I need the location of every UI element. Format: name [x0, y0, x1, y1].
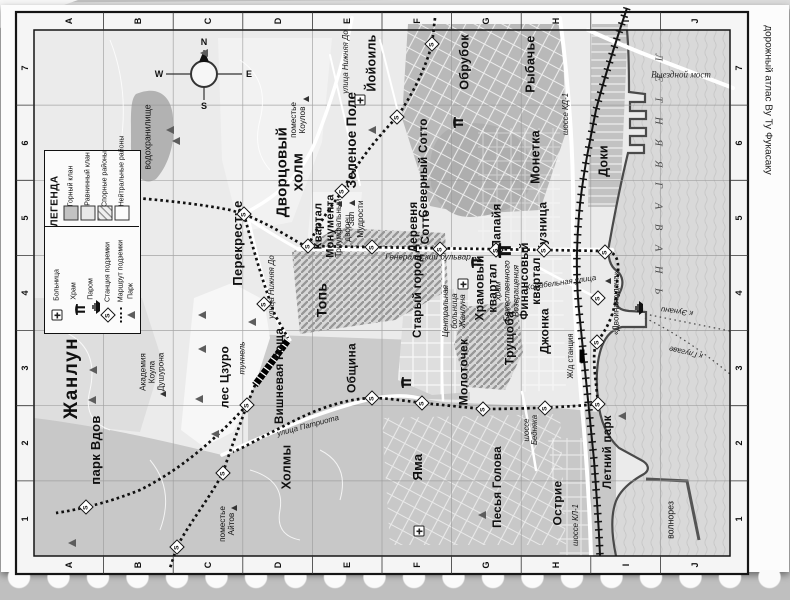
- district-old-town-label: Старый город: [412, 254, 424, 338]
- grid-row-4: 4: [20, 290, 30, 295]
- grid-col-B-bottom: B: [133, 562, 143, 569]
- legend-metro-route-icon: [120, 308, 122, 323]
- district-ostrie-label: Острие: [552, 480, 565, 525]
- district-pesya-golova-label: Песья Голова: [492, 446, 504, 528]
- park-icon: [248, 318, 256, 326]
- grid-col-J-bottom: J: [690, 562, 700, 567]
- poi-academy-label: Академия Коула Душурона: [140, 353, 167, 392]
- grid-row-2-right: 2: [734, 441, 744, 446]
- park-icon: [166, 126, 174, 134]
- grid-col-H-bottom: H: [551, 562, 561, 569]
- grid-col-C-bottom: C: [203, 562, 213, 569]
- grid-row-6-right: 6: [734, 140, 744, 145]
- park-icon: [89, 366, 97, 374]
- grid-col-F: F: [412, 18, 422, 24]
- grid-col-C: C: [203, 18, 213, 25]
- legend-hospital-icon: [52, 310, 63, 321]
- compass-w: W: [155, 69, 164, 79]
- street-kl-1-label: шоссе КЛ-1: [572, 504, 580, 546]
- grid-row-1-right: 1: [734, 516, 744, 521]
- grid-col-E: E: [342, 18, 352, 24]
- grid-col-B: B: [133, 18, 143, 25]
- legend-label-hospital: Больница: [54, 269, 61, 301]
- legend-swatch-mountain-clan: [64, 206, 79, 221]
- poi-marker-icon: [231, 505, 237, 511]
- district-papaya-label: Папайя: [491, 203, 504, 248]
- grid-col-I-bottom: I: [621, 564, 631, 567]
- legend-swatch-neutral-districts: [115, 206, 130, 221]
- legend-title: ЛЕГЕНДА: [50, 175, 61, 226]
- poi-ayts-estate-label: поместье Айтов: [219, 506, 237, 542]
- grid-row-6: 6: [20, 140, 30, 145]
- poi-marker-icon: [303, 96, 309, 102]
- legend-label-park: Парк: [128, 283, 135, 299]
- rail-station-icon: [580, 350, 585, 363]
- poi-rail-station-label: Ж/д станция: [567, 333, 575, 378]
- legend-swatch-disputed-districts: [98, 206, 113, 221]
- district-obrubok-label: Обрубок: [458, 34, 471, 90]
- atlas-caption: дорожный атлас Ву Ту Фукасаку: [763, 25, 774, 175]
- legend-label-temple: Храм: [71, 282, 78, 299]
- poi-central-hospital-label: Центральная больница Жанлуна: [442, 285, 468, 337]
- legend-park-icon: [127, 311, 135, 319]
- district-yoyoil-label: Йойоиль: [365, 34, 378, 91]
- legend-label-metro-route: Маршрут подземки: [118, 240, 125, 302]
- park-icon: [478, 511, 486, 519]
- grid-col-G: G: [481, 17, 491, 24]
- legend-label-metro-station: Станция подземки: [105, 242, 112, 302]
- district-doki-label: Доки: [597, 145, 610, 177]
- park-icon: [618, 412, 626, 420]
- poi-tunnel-label: туннель: [239, 342, 248, 375]
- legend-label-plain-clan: Равнинный клан: [85, 152, 92, 205]
- poi-marker-icon: [160, 391, 166, 397]
- park-icon: [198, 345, 206, 353]
- poi-marker-icon: [336, 201, 342, 207]
- park-icon: [172, 137, 180, 145]
- poi-wisdom-hall-label: Зал Мудрости: [348, 200, 366, 237]
- district-molotochek-label: Молоточек: [458, 339, 471, 406]
- district-palace-hill-label: Дворцовый холм: [274, 127, 306, 217]
- park-icon: [198, 311, 206, 319]
- poi-kouls-estate-label: поместье Коулов: [290, 102, 308, 138]
- park-icon: [68, 539, 76, 547]
- scanned-atlas-page: ЛЕГЕНДА N S W E Л Е Т Н Я Я Г А В А Н Ь …: [0, 0, 790, 600]
- poi-marker-icon: [605, 278, 611, 284]
- compass-n: N: [201, 37, 208, 47]
- grid-col-H: H: [551, 18, 561, 25]
- district-green-field-label: Зеленое Поле: [345, 92, 359, 189]
- park-icon: [195, 395, 203, 403]
- legend-label-mountain-clan: Горный клан: [68, 166, 75, 207]
- grid-row-7: 7: [20, 65, 30, 70]
- grid-col-F-bottom: F: [412, 562, 422, 568]
- hospital-icon: [458, 279, 469, 290]
- grid-row-5: 5: [20, 215, 30, 220]
- hospital-icon: [414, 526, 425, 537]
- sea-name-label: Л Е Т Н Я Я Г А В А Н Ь: [653, 54, 664, 301]
- legend-label-disputed-districts: Спорные районы: [102, 151, 109, 207]
- district-yama-label: Яма: [411, 454, 425, 481]
- grid-col-D-bottom: D: [273, 562, 283, 569]
- legend-label-ferry: Паром: [88, 278, 95, 300]
- district-monetka-label: Монетка: [529, 130, 542, 184]
- grid-col-I: I: [621, 20, 631, 23]
- district-kholmy-label: Холмы: [280, 445, 293, 490]
- legend-swatch-plain-clan: [81, 206, 96, 221]
- district-tszuro-forest-label: лес Цзуро: [219, 346, 232, 408]
- compass-e: E: [246, 69, 252, 79]
- hospital-icon: [355, 95, 366, 106]
- grid-row-5-right: 5: [734, 215, 744, 220]
- park-icon: [200, 49, 208, 57]
- grid-col-G-bottom: G: [481, 561, 491, 568]
- poi-divine-return-temple-label: храм Божественного Возвращения: [495, 260, 522, 321]
- district-rybachye-label: Рыбачье: [524, 35, 537, 92]
- grid-row-1: 1: [20, 516, 30, 521]
- grid-col-D: D: [273, 18, 283, 25]
- district-monument-quarter-label: Квартал Монумента: [313, 194, 336, 258]
- street-general-blvd-label: Генеральский бульвар: [385, 254, 471, 263]
- poi-exit-bridge-label: Выездной мост: [651, 70, 711, 79]
- park-icon: [211, 430, 219, 438]
- grid-col-J: J: [690, 18, 700, 23]
- grid-row-3-right: 3: [734, 366, 744, 371]
- poi-marker-icon: [349, 200, 355, 206]
- district-widows-park-label: парк Вдов: [89, 415, 103, 484]
- street-nizhnyaya-do-south-label: улица Нижняя До: [268, 255, 276, 319]
- grid-col-A-bottom: A: [64, 562, 74, 569]
- district-top-label: Топь: [315, 283, 330, 317]
- district-summer-park-label: Летний парк: [602, 415, 614, 489]
- compass-s: S: [201, 101, 207, 111]
- district-cherry-grove-label: Вишневая Роща: [274, 328, 286, 424]
- street-nizhnyaya-do-north-label: улица Нижняя До: [342, 30, 350, 94]
- city-title-label: Жанлун: [62, 337, 82, 419]
- poi-reservoir-label: водохранилище: [143, 104, 153, 169]
- grid-row-3: 3: [20, 366, 30, 371]
- district-sotto-village-label: Деревня Сотто: [408, 202, 432, 253]
- grid-row-2: 2: [20, 441, 30, 446]
- street-bednyaka-label: шоссе Бедняка: [523, 415, 539, 445]
- district-dzhonka-label: Джонка: [539, 308, 552, 354]
- street-kd-1-label: шоссе КД-1: [562, 93, 570, 135]
- legend-label-neutral-districts: Нейтральные районы: [119, 136, 126, 207]
- grid-row-4-right: 4: [734, 290, 744, 295]
- poi-double-luck-label: «Двойная удача»: [613, 271, 622, 335]
- park-icon: [88, 396, 96, 404]
- grid-row-7-right: 7: [734, 65, 744, 70]
- grid-col-A: A: [64, 18, 74, 25]
- poi-breakwater-label: волнорез: [666, 501, 676, 539]
- grid-col-E-bottom: E: [342, 562, 352, 568]
- park-icon: [368, 126, 376, 134]
- district-obshchina-label: Община: [346, 343, 359, 393]
